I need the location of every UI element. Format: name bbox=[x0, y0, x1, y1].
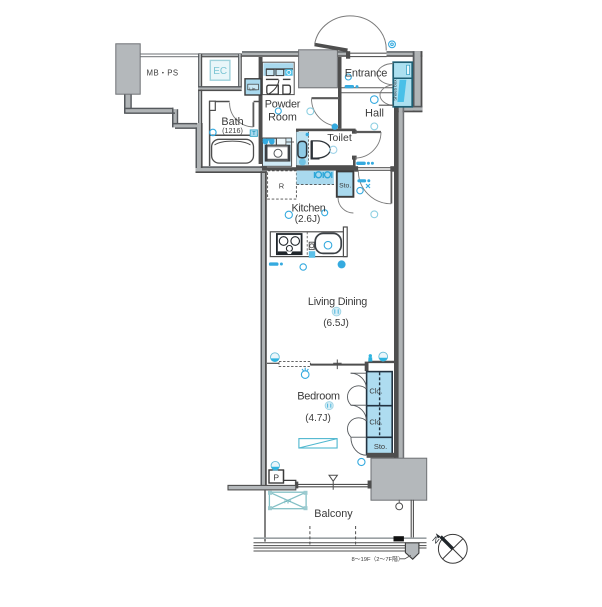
svg-text:(2.6J): (2.6J) bbox=[295, 214, 321, 225]
svg-text:Room: Room bbox=[268, 112, 297, 124]
svg-text:Hall: Hall bbox=[365, 108, 384, 120]
svg-text:Powder: Powder bbox=[265, 99, 301, 111]
svg-text:Bedroom: Bedroom bbox=[297, 391, 340, 403]
svg-text:Balcony: Balcony bbox=[314, 508, 353, 520]
svg-text:Entrance: Entrance bbox=[345, 68, 388, 80]
svg-text:Living Dining: Living Dining bbox=[308, 296, 367, 308]
svg-text:P: P bbox=[273, 473, 279, 483]
svg-text:Shoes box: Shoes box bbox=[392, 79, 397, 101]
svg-text:(6.5J): (6.5J) bbox=[323, 318, 349, 329]
svg-text:Sto.: Sto. bbox=[374, 442, 387, 451]
svg-text:R: R bbox=[279, 182, 285, 191]
svg-text:Lin.: Lin. bbox=[249, 86, 256, 91]
svg-text:EC: EC bbox=[213, 66, 227, 77]
svg-text:Sto.: Sto. bbox=[339, 183, 351, 190]
svg-text:Clo.: Clo. bbox=[369, 387, 382, 396]
svg-text:8〜19F（2〜7F階）: 8〜19F（2〜7F階） bbox=[352, 555, 404, 563]
svg-text:Clo.: Clo. bbox=[369, 418, 382, 427]
svg-text:MB・PS: MB・PS bbox=[147, 69, 179, 78]
svg-text:HP: HP bbox=[284, 500, 292, 506]
svg-text:(1216): (1216) bbox=[222, 126, 243, 135]
svg-text:(4.7J): (4.7J) bbox=[305, 413, 331, 424]
svg-text:Kitchen: Kitchen bbox=[292, 203, 326, 215]
svg-text:Toilet: Toilet bbox=[327, 132, 352, 144]
